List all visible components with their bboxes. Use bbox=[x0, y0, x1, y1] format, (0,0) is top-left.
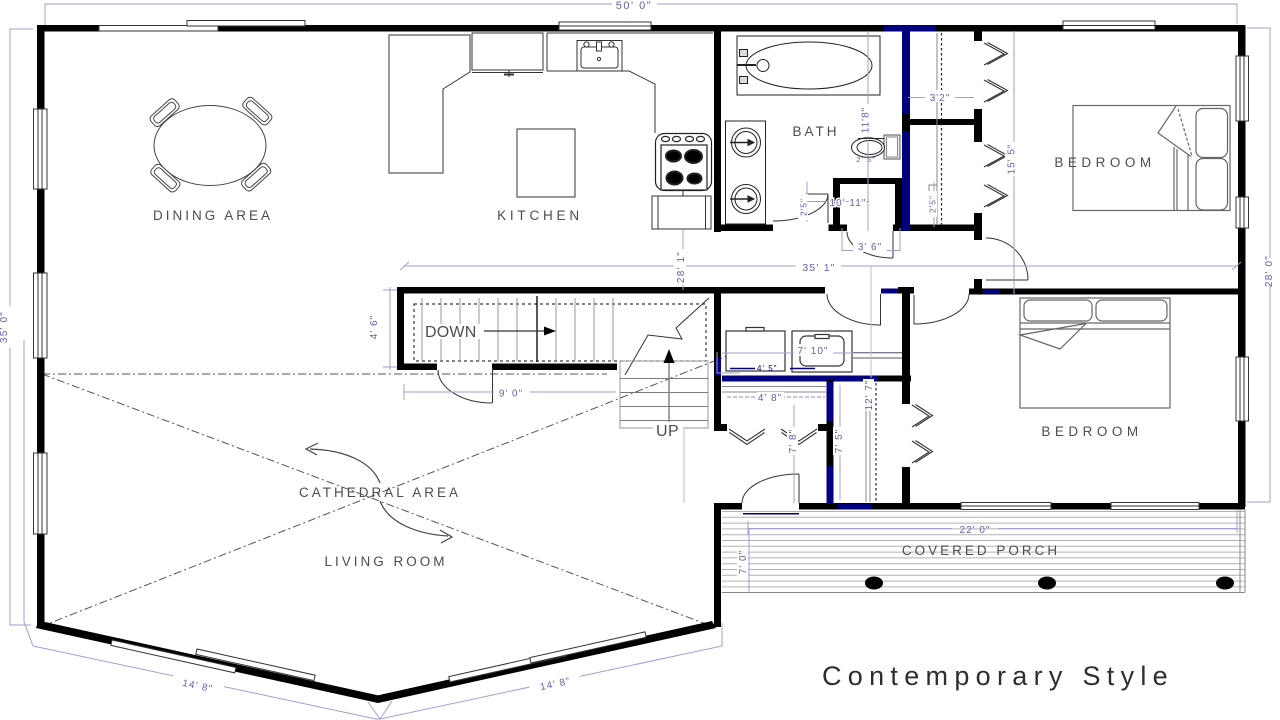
svg-text:COVERED PORCH: COVERED PORCH bbox=[902, 543, 1060, 558]
svg-text:7' 10": 7' 10" bbox=[798, 346, 829, 357]
svg-text:DOWN: DOWN bbox=[425, 324, 476, 341]
svg-text:BEDROOM: BEDROOM bbox=[1041, 424, 1142, 439]
svg-text:4' 8": 4' 8" bbox=[758, 393, 782, 404]
svg-text:7' 8": 7' 8" bbox=[788, 429, 799, 453]
svg-text:7' 0": 7' 0" bbox=[738, 550, 749, 574]
svg-text:KITCHEN: KITCHEN bbox=[497, 208, 583, 223]
svg-text:3' 6": 3' 6" bbox=[858, 242, 882, 253]
svg-text:28' 0": 28' 0" bbox=[1264, 255, 1275, 287]
svg-text:3'2": 3'2" bbox=[930, 93, 951, 104]
svg-text:12' 7": 12' 7" bbox=[864, 380, 875, 411]
svg-text:10' 11": 10' 11" bbox=[830, 198, 867, 209]
svg-text:7' 5": 7' 5" bbox=[834, 429, 845, 453]
svg-text:28' 1": 28' 1" bbox=[676, 251, 687, 283]
svg-text:2' 5": 2' 5" bbox=[856, 155, 876, 164]
svg-text:9' 0": 9' 0" bbox=[499, 389, 523, 400]
svg-text:2'5": 2'5" bbox=[928, 195, 938, 213]
svg-text:LIVING ROOM: LIVING ROOM bbox=[324, 554, 447, 569]
svg-text:35' 1": 35' 1" bbox=[802, 262, 835, 274]
svg-text:35' 0": 35' 0" bbox=[0, 311, 10, 343]
svg-text:CATHEDRAL AREA: CATHEDRAL AREA bbox=[299, 485, 461, 500]
svg-text:BEDROOM: BEDROOM bbox=[1054, 155, 1155, 170]
svg-text:Contemporary Style: Contemporary Style bbox=[822, 661, 1174, 691]
svg-text:2'5": 2'5" bbox=[799, 198, 809, 216]
svg-text:11'8": 11'8" bbox=[861, 107, 872, 133]
svg-text:15' 5": 15' 5" bbox=[1007, 144, 1018, 175]
svg-text:50' 0": 50' 0" bbox=[616, 0, 652, 12]
svg-text:BATH: BATH bbox=[792, 124, 839, 139]
svg-text:4' 5": 4' 5" bbox=[757, 364, 778, 373]
svg-text:4' 6": 4' 6" bbox=[369, 315, 380, 339]
svg-text:UP: UP bbox=[656, 423, 679, 440]
svg-text:22' 0": 22' 0" bbox=[960, 525, 991, 536]
svg-text:DINING AREA: DINING AREA bbox=[153, 208, 273, 223]
